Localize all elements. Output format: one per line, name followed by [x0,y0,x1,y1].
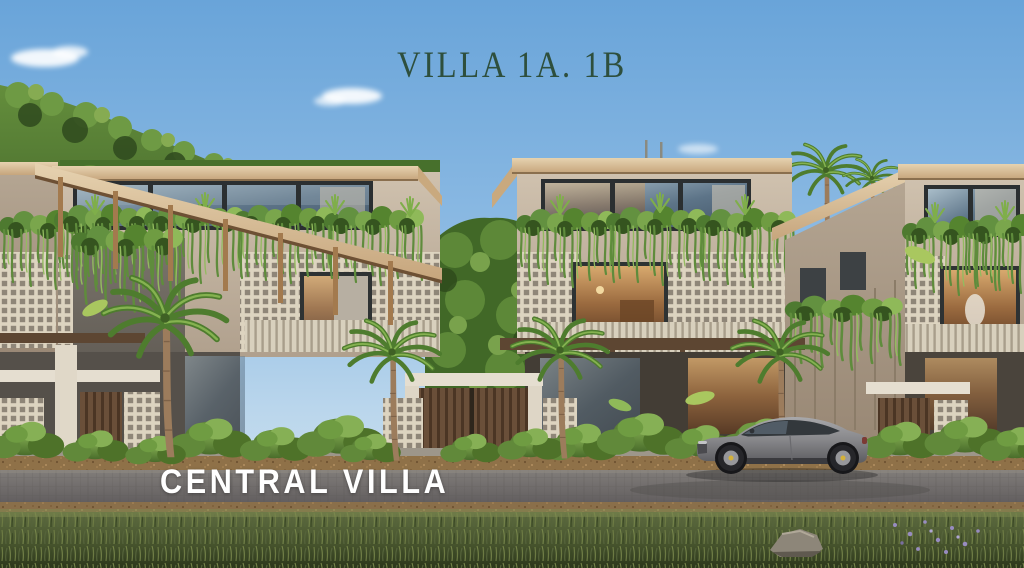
grass-verge [0,509,1024,568]
project-title: VILLA 1A. 1B [397,44,627,87]
villa-block-right [898,164,1024,355]
villa-name-caption: CENTRAL VILLA [160,463,449,502]
villa-rendering: VILLA 1A. 1B CENTRAL VILLA [0,0,1024,568]
